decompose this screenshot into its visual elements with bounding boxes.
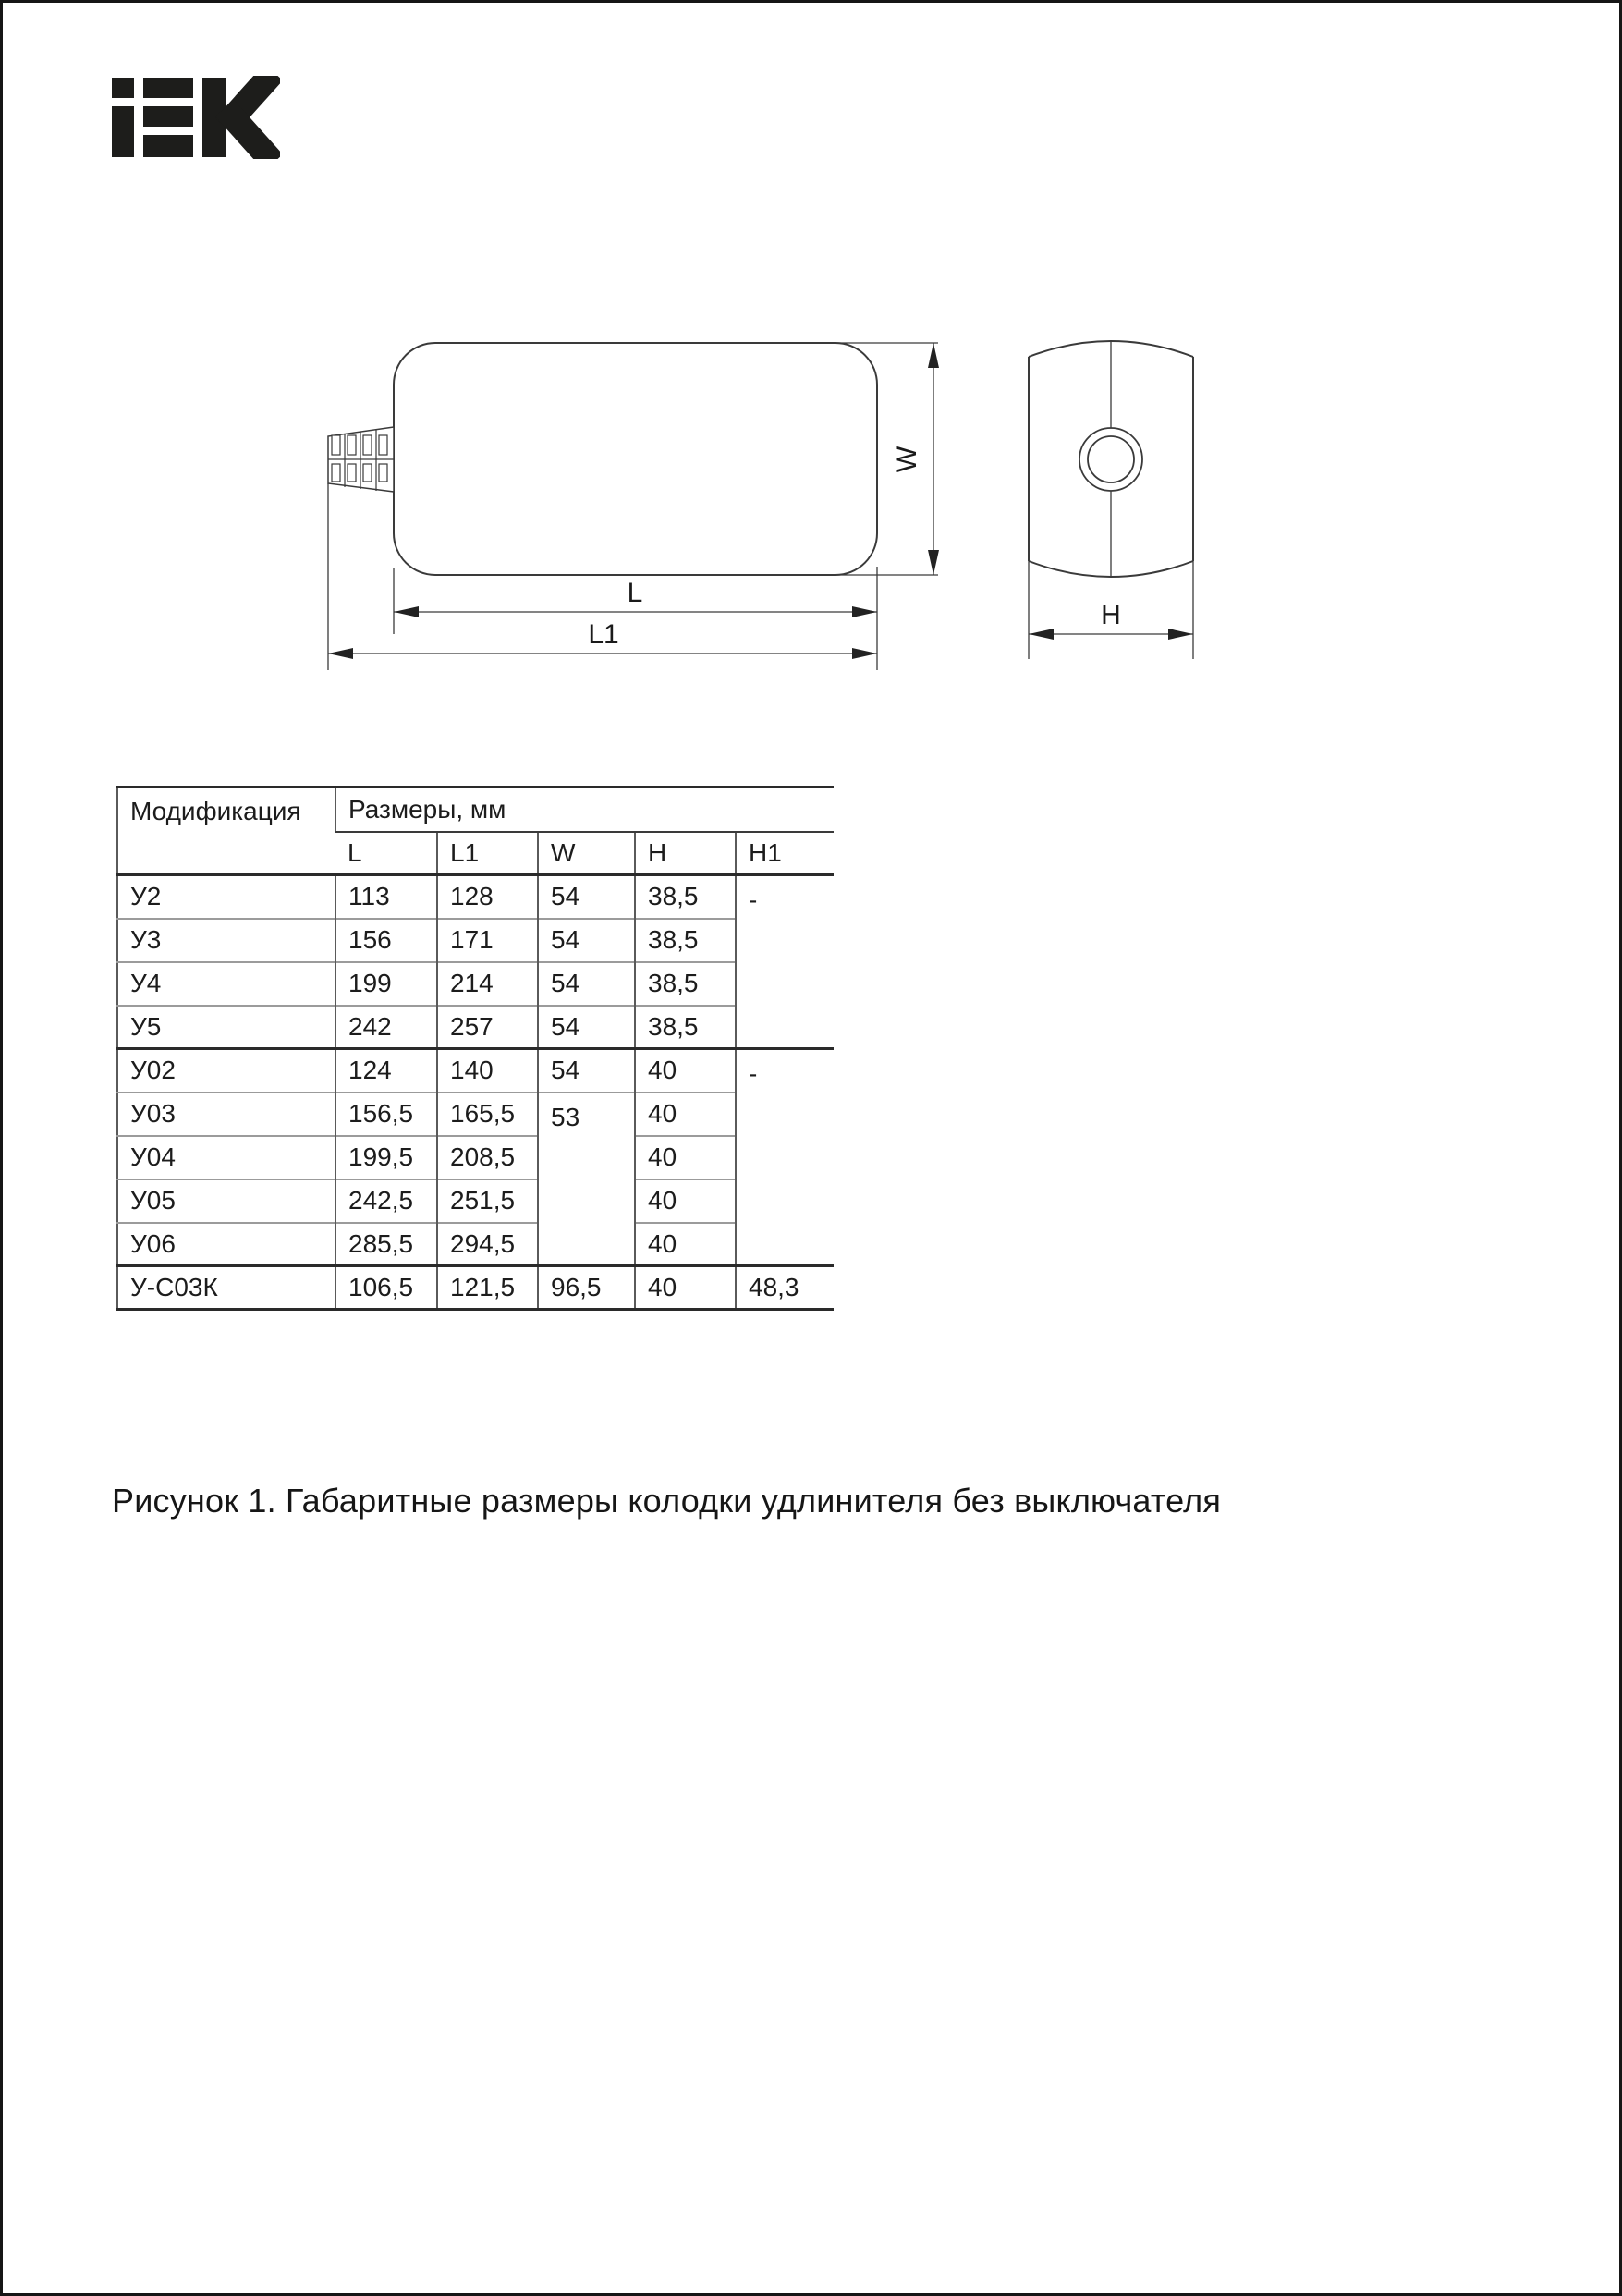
header-col-h1: H1	[736, 832, 834, 875]
header-col-l: L	[335, 832, 437, 875]
cell-l1: 257	[437, 1006, 538, 1049]
cell-l1: 165,5	[437, 1093, 538, 1136]
cell-modification: У2	[117, 875, 335, 919]
table-body: У21131285438,5-У31561715438,5У4199214543…	[117, 875, 834, 1310]
cell-l: 242	[335, 1006, 437, 1049]
cell-w: 54	[538, 962, 635, 1006]
cell-h: 40	[635, 1049, 736, 1093]
cell-l: 199	[335, 962, 437, 1006]
cell-l1: 251,5	[437, 1179, 538, 1223]
cell-h1: 48,3	[736, 1266, 834, 1310]
cell-l: 106,5	[335, 1266, 437, 1310]
document-page: L L1 W H Модификация Размеры, мм L L1 W …	[0, 0, 1622, 2296]
cell-modification: У06	[117, 1223, 335, 1266]
cell-h: 40	[635, 1179, 736, 1223]
cell-w: 96,5	[538, 1266, 635, 1310]
cell-l: 285,5	[335, 1223, 437, 1266]
cell-l1: 140	[437, 1049, 538, 1093]
table-row: У-С03К106,5121,596,54048,3	[117, 1266, 834, 1310]
table-row: У21131285438,5-	[117, 875, 834, 919]
cell-h: 40	[635, 1266, 736, 1310]
dim-label-l1: L1	[588, 619, 618, 650]
cell-w: 54	[538, 1006, 635, 1049]
cell-w: 53	[538, 1093, 635, 1266]
table-row: У021241405440-	[117, 1049, 834, 1093]
cell-w: 54	[538, 1049, 635, 1093]
header-col-l1: L1	[437, 832, 538, 875]
dim-label-l: L	[628, 578, 643, 608]
cell-l: 156,5	[335, 1093, 437, 1136]
figure-caption: Рисунок 1. Габаритные размеры колодки уд…	[112, 1482, 1221, 1520]
cell-modification: У4	[117, 962, 335, 1006]
cell-l: 199,5	[335, 1136, 437, 1179]
iek-logo-glyphs	[112, 78, 265, 157]
table-row: У31561715438,5	[117, 919, 834, 962]
cell-l: 156	[335, 919, 437, 962]
cell-l1: 294,5	[437, 1223, 538, 1266]
header-col-h: H	[635, 832, 736, 875]
cell-w: 54	[538, 919, 635, 962]
cell-w: 54	[538, 875, 635, 919]
cell-h1: -	[736, 875, 834, 1049]
table-row: У06285,5294,540	[117, 1223, 834, 1266]
cell-l: 124	[335, 1049, 437, 1093]
cell-modification: У05	[117, 1179, 335, 1223]
cell-modification: У04	[117, 1136, 335, 1179]
body-outline	[394, 343, 877, 575]
cell-h: 40	[635, 1136, 736, 1179]
table-row: У03156,5165,55340	[117, 1093, 834, 1136]
dimensions-table: Модификация Размеры, мм L L1 W H H1 У211…	[116, 786, 834, 1311]
cell-l: 113	[335, 875, 437, 919]
end-view	[1029, 341, 1193, 577]
cell-l1: 208,5	[437, 1136, 538, 1179]
table-row: У04199,5208,540	[117, 1136, 834, 1179]
header-sizes: Размеры, мм	[335, 788, 834, 832]
cell-h: 38,5	[635, 919, 736, 962]
iek-logo	[112, 76, 280, 159]
header-col-w: W	[538, 832, 635, 875]
cell-modification: У03	[117, 1093, 335, 1136]
cell-modification: У02	[117, 1049, 335, 1093]
header-modification: Модификация	[117, 788, 335, 875]
dim-label-h: H	[1101, 600, 1121, 630]
cell-l1: 128	[437, 875, 538, 919]
table-row: У52422575438,5	[117, 1006, 834, 1049]
cell-l1: 171	[437, 919, 538, 962]
button-outer-circle	[1079, 428, 1142, 491]
dim-label-w: W	[892, 446, 922, 472]
cell-l1: 214	[437, 962, 538, 1006]
cell-h: 40	[635, 1093, 736, 1136]
cell-l: 242,5	[335, 1179, 437, 1223]
cell-h: 38,5	[635, 875, 736, 919]
cell-modification: У5	[117, 1006, 335, 1049]
dimension-drawing: L L1 W H	[280, 317, 1260, 687]
cell-h: 38,5	[635, 1006, 736, 1049]
table-row: У05242,5251,540	[117, 1179, 834, 1223]
cell-h: 40	[635, 1223, 736, 1266]
cell-modification: У-С03К	[117, 1266, 335, 1310]
table-row: У41992145438,5	[117, 962, 834, 1006]
cell-h1: -	[736, 1049, 834, 1266]
cell-l1: 121,5	[437, 1266, 538, 1310]
cell-modification: У3	[117, 919, 335, 962]
cell-h: 38,5	[635, 962, 736, 1006]
